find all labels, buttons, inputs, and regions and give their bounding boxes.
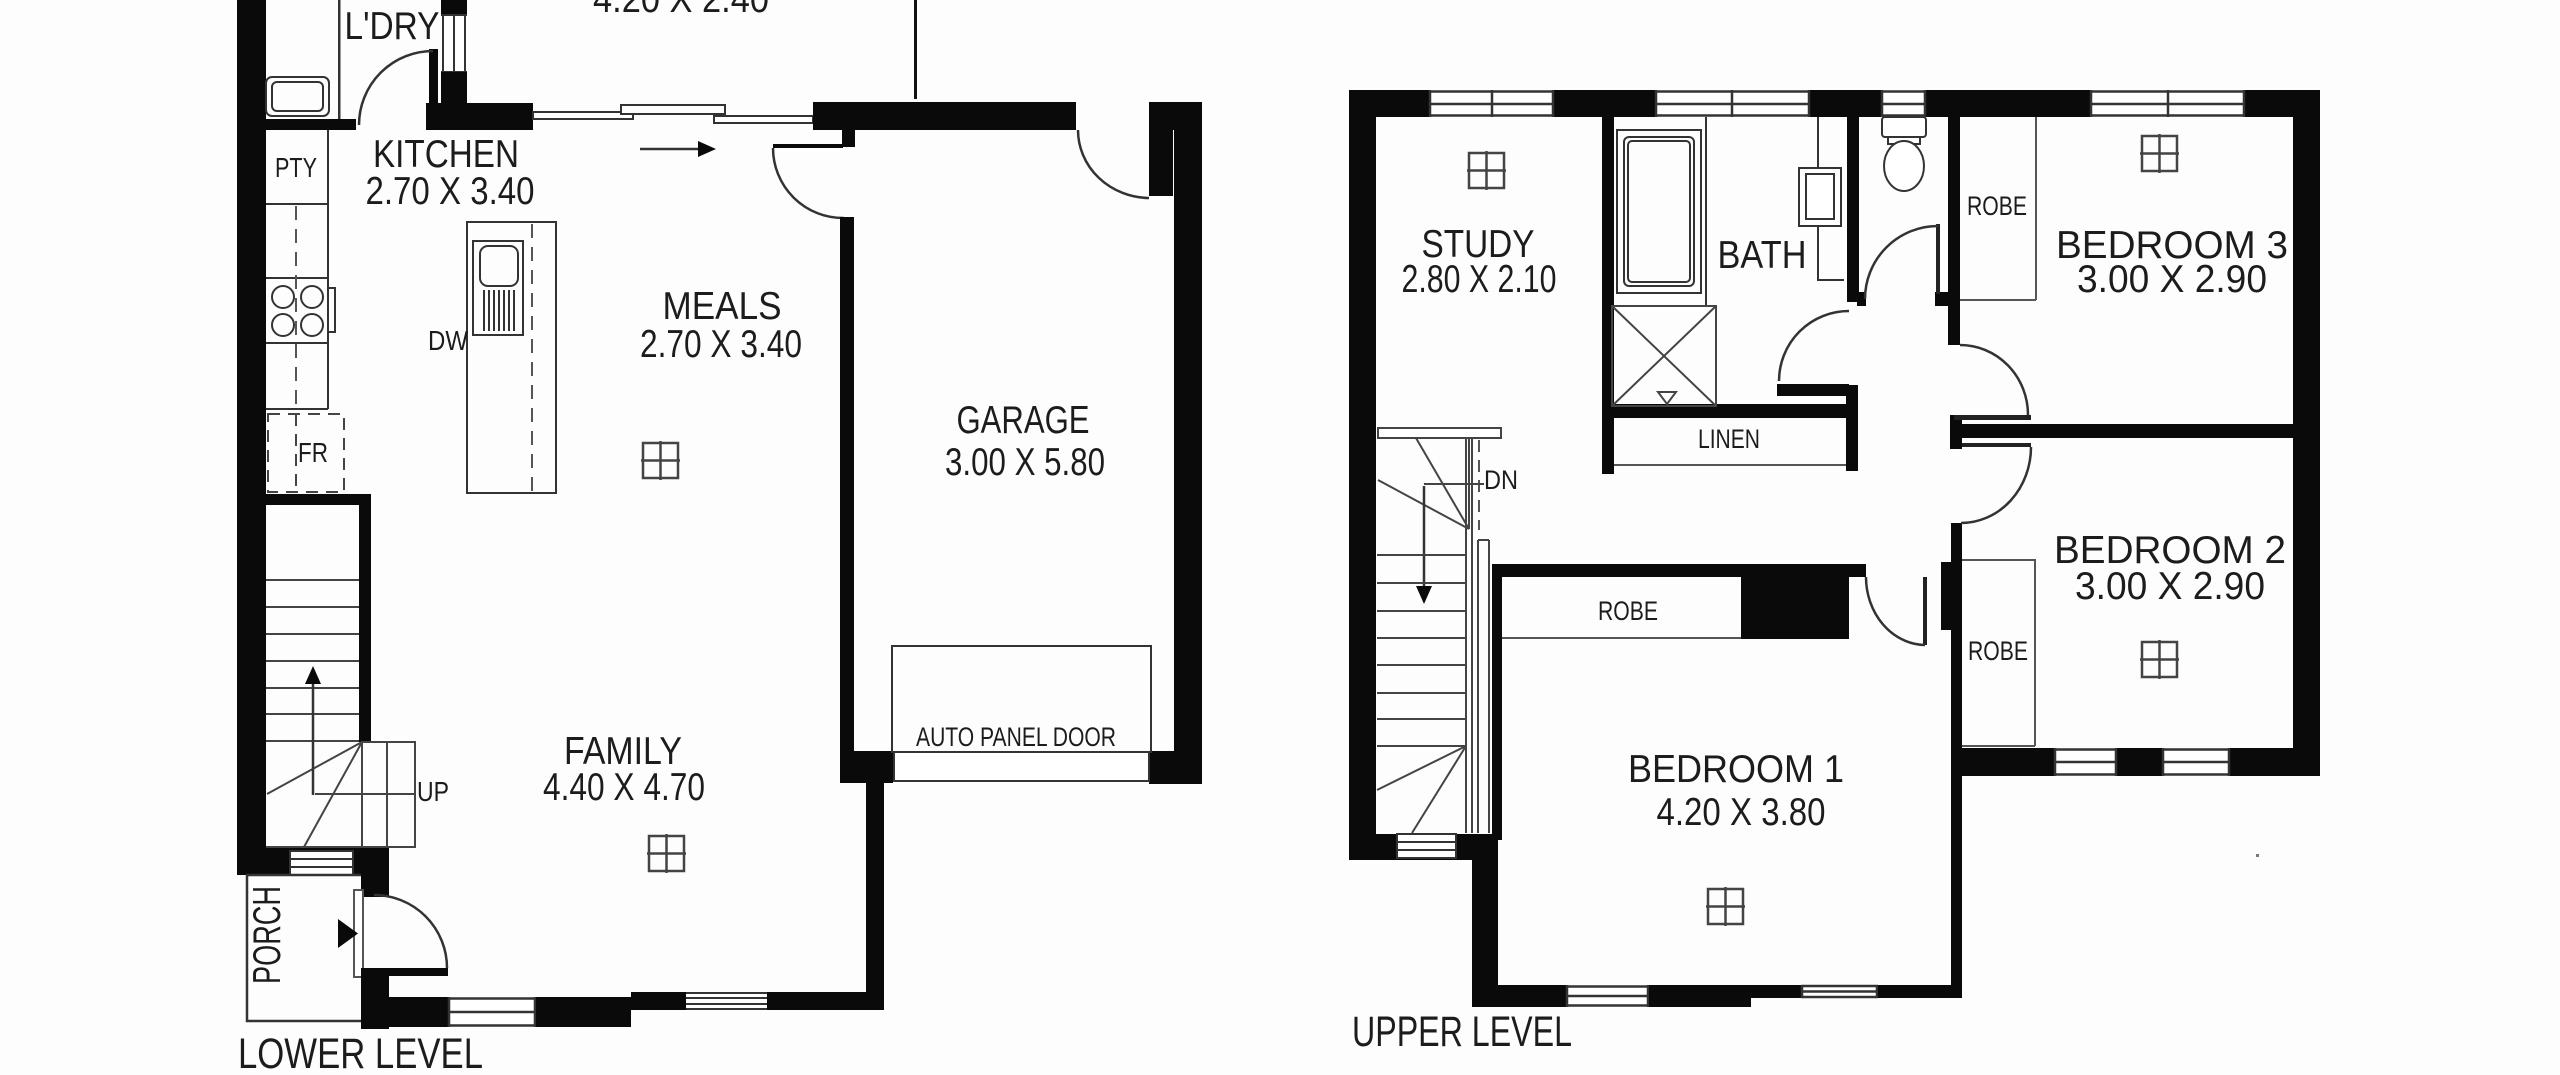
svg-text:UP: UP xyxy=(417,776,449,807)
svg-text:BATH: BATH xyxy=(1718,234,1807,277)
svg-text:GARAGE: GARAGE xyxy=(957,399,1090,442)
svg-text:ROBE: ROBE xyxy=(1967,191,2027,221)
svg-text:L'DRY: L'DRY xyxy=(345,5,440,48)
svg-text:4.20 X 3.80: 4.20 X 3.80 xyxy=(1657,791,1826,834)
svg-text:ROBE: ROBE xyxy=(1598,596,1658,626)
svg-text:PTY: PTY xyxy=(275,152,317,183)
svg-text:UPPER LEVEL: UPPER LEVEL xyxy=(1352,1008,1572,1056)
svg-text:DN: DN xyxy=(1484,465,1518,495)
svg-text:ROBE: ROBE xyxy=(1968,636,2028,666)
svg-text:BEDROOM 1: BEDROOM 1 xyxy=(1628,748,1844,791)
svg-text:MEALS: MEALS xyxy=(663,285,782,328)
svg-text:PORCH: PORCH xyxy=(246,886,289,984)
svg-text:LINEN: LINEN xyxy=(1698,424,1760,454)
svg-text:2.80 X 2.10: 2.80 X 2.10 xyxy=(1402,258,1557,301)
svg-text:DW: DW xyxy=(428,325,468,356)
svg-text:2.70 X 3.40: 2.70 X 3.40 xyxy=(640,323,802,366)
svg-text:3.00 X 5.80: 3.00 X 5.80 xyxy=(945,441,1105,484)
svg-text:4.20 X 2.40: 4.20 X 2.40 xyxy=(593,0,769,21)
svg-text:3.00 X 2.90: 3.00 X 2.90 xyxy=(2075,565,2265,608)
svg-text:4.40 X 4.70: 4.40 X 4.70 xyxy=(543,766,705,809)
svg-text:3.00 X 2.90: 3.00 X 2.90 xyxy=(2077,258,2267,301)
svg-text:LOWER LEVEL: LOWER LEVEL xyxy=(238,1030,483,1075)
svg-text:FR: FR xyxy=(298,437,328,468)
svg-text:2.70 X 3.40: 2.70 X 3.40 xyxy=(366,170,535,213)
svg-text:AUTO PANEL DOOR: AUTO PANEL DOOR xyxy=(916,722,1116,752)
